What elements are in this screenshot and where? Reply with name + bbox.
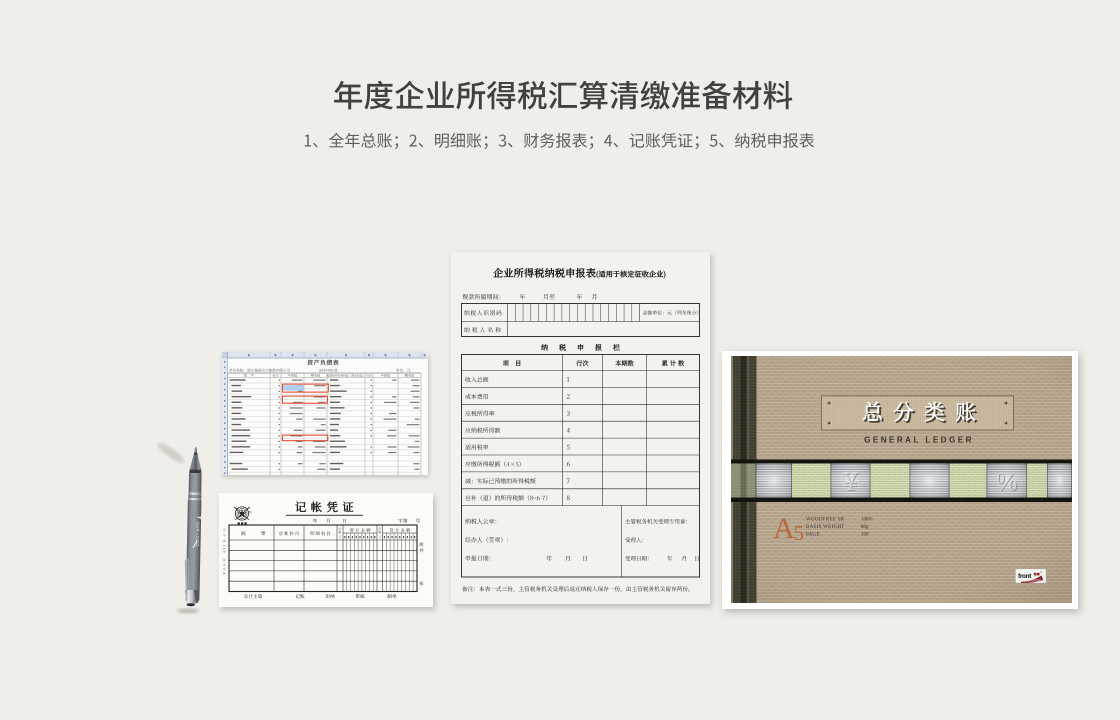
- svg-text:2014-08-31: 2014-08-31: [319, 368, 338, 372]
